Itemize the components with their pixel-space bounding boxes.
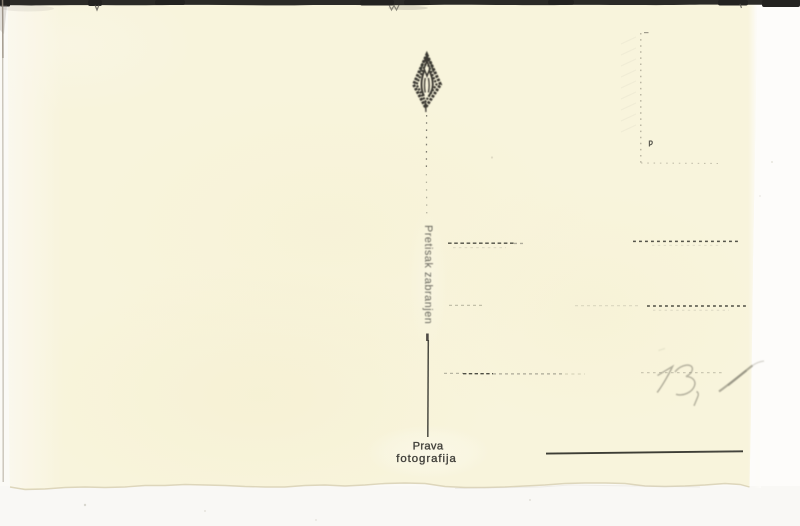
svg-text:Prava: Prava [413, 441, 444, 453]
svg-text:Pretisak zabranjen: Pretisak zabranjen [422, 225, 434, 324]
svg-text:fotografija: fotografija [396, 453, 456, 465]
